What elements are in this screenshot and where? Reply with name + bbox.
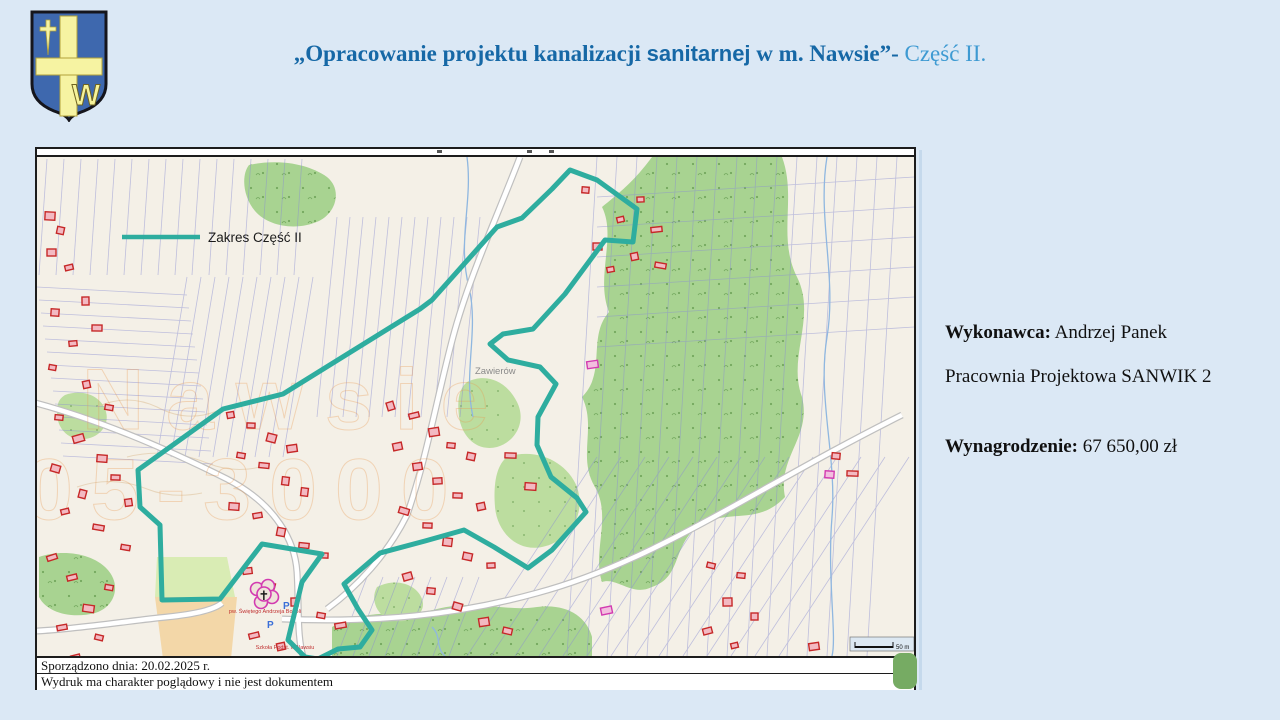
school-label: Szkoła Podst. w Nawsiu xyxy=(256,645,315,651)
slide-root: W „Opracowanie projektu kanalizacji sani… xyxy=(0,0,1280,720)
map-image: Nawsie 05-3000 ✝ pw. Świętego Andrzeja B… xyxy=(37,157,914,656)
svg-text:P: P xyxy=(283,601,290,612)
title-part2: sanitarnej xyxy=(647,41,751,66)
contractor-label: Wykonawca: xyxy=(945,322,1051,343)
svg-text:Nawsie: Nawsie xyxy=(82,352,510,448)
footer-disclaimer: Wydruk ma charakter poglądowy i nie jest… xyxy=(37,674,914,689)
footer-green-square xyxy=(893,653,917,689)
fee-label: Wynagrodzenie: xyxy=(945,436,1078,457)
page-title: „Opracowanie projektu kanalizacji sanita… xyxy=(240,40,1040,69)
contractor-company: Pracownia Projektowa SANWIK 2 xyxy=(945,366,1265,388)
contractor-value: Andrzej Panek xyxy=(1051,322,1167,343)
crop-mark xyxy=(527,150,532,153)
coat-of-arms: W xyxy=(28,8,110,122)
title-part3: w m. Nawsie”- xyxy=(751,41,905,66)
spacer xyxy=(945,410,1265,436)
legend-label: Zakres Część II xyxy=(208,230,302,245)
crop-mark xyxy=(549,150,554,153)
place-label-zawierow: Zawierów xyxy=(475,366,516,377)
fee-value: 67 650,00 zł xyxy=(1078,436,1177,457)
svg-text:✝: ✝ xyxy=(259,589,270,604)
crop-mark xyxy=(437,150,442,153)
project-details: Wykonawca: Andrzej Panek Pracownia Proje… xyxy=(945,322,1265,480)
crest-letter: W xyxy=(72,79,101,112)
contractor-line: Wykonawca: Andrzej Panek xyxy=(945,322,1265,344)
footer-date: Sporządzono dnia: 20.02.2025 r. xyxy=(37,658,914,674)
title-part1: „Opracowanie projektu kanalizacji xyxy=(294,41,647,66)
church-label: pw. Świętego Andrzeja Boboli xyxy=(229,607,301,615)
title-part4: Część II. xyxy=(905,41,987,66)
fee-line: Wynagrodzenie: 67 650,00 zł xyxy=(945,436,1265,458)
scale-label: 50 m xyxy=(896,645,909,651)
scale-bar: 50 m xyxy=(850,637,914,651)
map-top-crop-marks xyxy=(37,149,914,157)
svg-text:P: P xyxy=(267,620,274,631)
watermark: Nawsie 05-3000 xyxy=(37,352,510,538)
map-panel: Nawsie 05-3000 ✝ pw. Świętego Andrzeja B… xyxy=(35,147,916,690)
map-footer: Sporządzono dnia: 20.02.2025 r. Wydruk m… xyxy=(37,656,914,690)
map-side-line xyxy=(919,150,922,690)
